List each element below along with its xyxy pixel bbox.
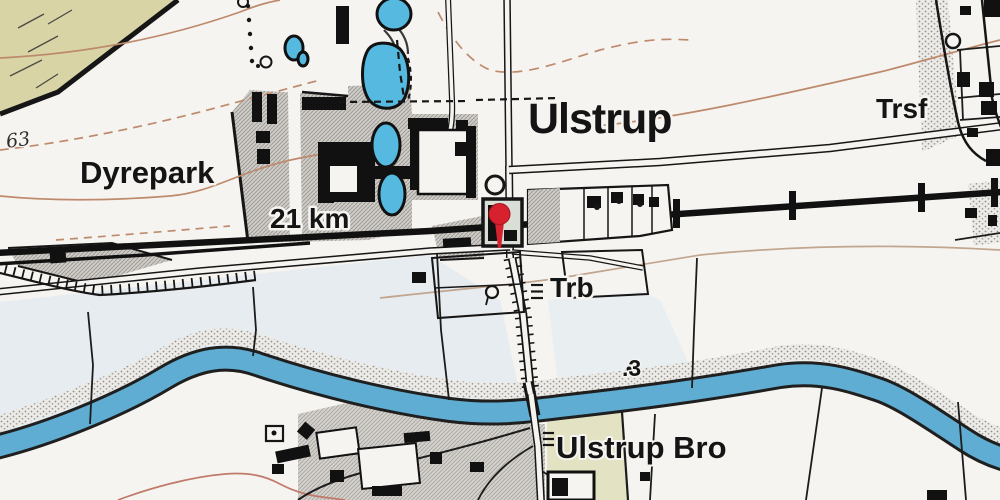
label-transformer-trsf: Trsf [876,93,928,124]
label-town-ulstrup: Ulstrup [528,95,672,143]
label-distance-21km: 21 km [270,203,349,234]
label-elevation-point: .3 [622,355,641,381]
topographic-map: Ulstrup Trsf Dyrepark 21 km Trb Ulstrup … [0,0,1000,500]
pond [372,123,400,167]
pond [298,52,308,66]
label-dyrepark: Dyrepark [80,155,215,190]
pond [363,43,409,108]
tank-icon [946,34,960,48]
round-building-icon [486,176,504,194]
railway-platform [50,250,67,263]
label-ulstrup-bro: Ulstrup Bro [556,430,727,465]
pin-head [489,204,510,225]
map-canvas: Ulstrup Trsf Dyrepark 21 km Trb Ulstrup … [0,0,1000,500]
label-halt-trb: Trb [550,272,594,303]
pond [379,173,405,215]
well-icon [486,286,498,298]
boundary-stone-icon [261,57,272,68]
label-spot-height-63: 63 [5,128,32,153]
pond [377,0,411,30]
